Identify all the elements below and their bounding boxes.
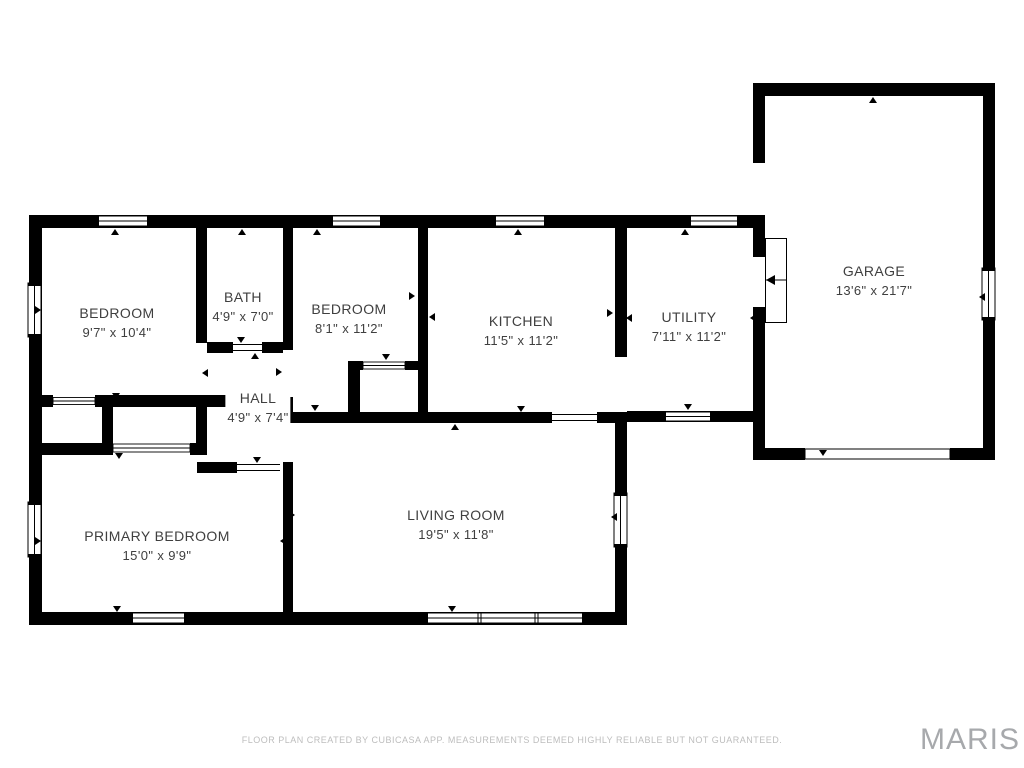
room-label-bedroom-2: BEDROOM 8'1" x 11'2" — [311, 300, 386, 338]
room-dimensions: 9'7" x 10'4" — [79, 323, 154, 342]
room-name: GARAGE — [836, 262, 913, 281]
room-name: BEDROOM — [311, 300, 386, 319]
garage-door — [805, 449, 950, 459]
room-dimensions: 19'5" x 11'8" — [407, 525, 505, 544]
disclaimer-text: FLOOR PLAN CREATED BY CUBICASA APP. MEAS… — [0, 735, 1024, 745]
room-name: HALL — [225, 389, 290, 408]
room-name: BATH — [212, 288, 273, 307]
room-dimensions: 4'9" x 7'4" — [225, 408, 290, 427]
floor-plan-drawing — [0, 0, 1024, 768]
room-name: UTILITY — [652, 308, 727, 327]
window-utility-bottom — [663, 412, 713, 421]
room-label-hall: HALL 4'9" x 7'4" — [225, 389, 290, 427]
window-primary-bottom — [130, 613, 187, 623]
door-openings — [53, 345, 597, 471]
window-top-bedroom1 — [96, 216, 150, 226]
window-living-bottom-triple — [425, 613, 585, 623]
room-dimensions: 4'9" x 7'0" — [212, 307, 273, 326]
window-top-kitchen — [493, 216, 547, 226]
room-name: BEDROOM — [79, 304, 154, 323]
window-left-primary — [28, 502, 41, 557]
room-name: PRIMARY BEDROOM — [84, 527, 230, 546]
maris-watermark: MARIS — [920, 723, 1020, 757]
room-dimensions: 15'0" x 9'9" — [84, 546, 230, 565]
room-dimensions: 11'5" x 11'2" — [484, 331, 559, 350]
room-label-primary-bedroom: PRIMARY BEDROOM 15'0" x 9'9" — [84, 527, 230, 565]
room-label-kitchen: KITCHEN 11'5" x 11'2" — [484, 312, 559, 350]
room-dimensions: 8'1" x 11'2" — [311, 319, 386, 338]
room-dimensions: 7'11" x 11'2" — [652, 327, 727, 346]
utility-garage-door-swing — [766, 239, 787, 323]
room-label-bedroom-1: BEDROOM 9'7" x 10'4" — [79, 304, 154, 342]
room-label-utility: UTILITY 7'11" x 11'2" — [652, 308, 727, 346]
room-label-bath: BATH 4'9" x 7'0" — [212, 288, 273, 326]
window-top-utility — [688, 216, 740, 226]
room-name: LIVING ROOM — [407, 506, 505, 525]
room-label-garage: GARAGE 13'6" x 21'7" — [836, 262, 913, 300]
window-top-bedroom2 — [330, 216, 383, 226]
room-dimensions: 13'6" x 21'7" — [836, 281, 913, 300]
room-name: KITCHEN — [484, 312, 559, 331]
room-label-living-room: LIVING ROOM 19'5" x 11'8" — [407, 506, 505, 544]
floor-plan-page: BEDROOM 9'7" x 10'4" BATH 4'9" x 7'0" BE… — [0, 0, 1024, 768]
